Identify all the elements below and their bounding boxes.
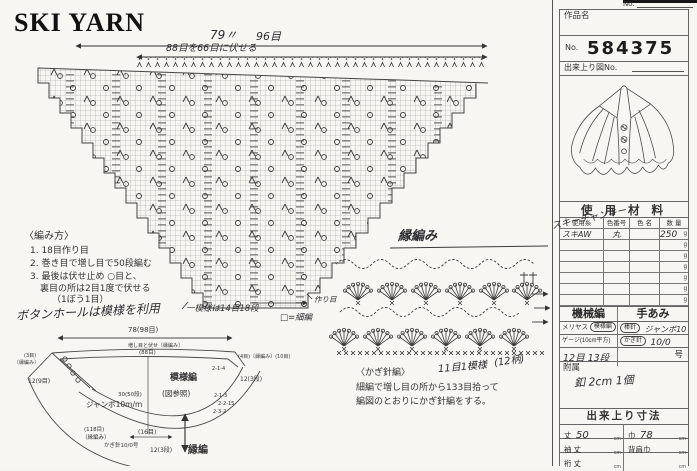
schematic-left-dim: 12(9目) (28, 379, 50, 386)
stitch-type-row: メリヤス 模様編 棒針 ジャンボ10 (559, 322, 689, 335)
knit-chart (38, 46, 488, 309)
qty-unit: g (684, 284, 688, 295)
material-row-color-no: 丸 (604, 229, 630, 240)
schematic-center-sts: (16目) (138, 430, 156, 437)
gauge-label: ゲージ(10cm平方) (560, 335, 618, 349)
schematic-dec: 2-3-2 (213, 410, 226, 416)
crochet-note-line: 細編で増し目の所から133目拾って (356, 383, 499, 393)
chart-legend: □=細編 (280, 314, 312, 324)
schematic-body-ref: (図参照) (162, 390, 190, 398)
instructions-heading: 〈編み方〉 (24, 231, 74, 242)
chart-repeat-note: 一模様は14目18段 (186, 305, 259, 315)
crochet-chart (330, 246, 551, 358)
form-figure-box: 出来上り図No. (559, 62, 689, 76)
qty-unit: g (684, 295, 688, 306)
form-top-no-label: No. (623, 1, 635, 9)
schematic-right-note: (4目)〔縁編み〕(10目) (238, 355, 290, 361)
instruction-step: 1. 18目作り目 (30, 246, 89, 256)
size-header-box: 出来上り寸法 (559, 409, 689, 425)
size-label-yuki: 裄 丈 (560, 459, 581, 468)
qty-unit: g (684, 273, 688, 284)
method-header-row: 機械編 手あみ (559, 307, 689, 322)
qty-unit: g (684, 262, 688, 273)
accessories-value: 釦 2cm 1個 (574, 374, 634, 389)
instruction-step: 2. 巻き目で増し目で50段編む (30, 259, 152, 269)
instruction-step: 3. 最後は伏せ止め ○目と、 (30, 272, 142, 282)
accessories-box: 附属 釦 2cm 1個 (559, 362, 689, 409)
hand-knit-header: 手あみ (618, 307, 688, 321)
accessories-label: 附属 (563, 364, 580, 374)
size-unit: cm (679, 464, 686, 470)
pattern-form: No. 作品名 No. 584375 出来上り図No. (552, 0, 697, 466)
gauge-value-row: 12目 13段 号 (559, 348, 689, 362)
crochet-note-line: 編図のとおりにかぎ針編をする。 (356, 397, 491, 407)
crochet-title: 縁編み (398, 230, 437, 245)
form-number-box: No. 584375 (559, 36, 689, 62)
hook-type-label: かぎ針 (620, 336, 646, 346)
schematic-band-label: 縁編 (188, 445, 208, 456)
chart-stitch-count: 96目 (256, 31, 281, 43)
schematic-top-dim: 78(98目) (128, 327, 158, 335)
machine-knit-header: 機械編 (560, 307, 618, 321)
size-row-3: 裄 丈 cm cm (559, 453, 689, 466)
pattern-number: 584375 (587, 39, 674, 59)
crochet-heading: 〈かぎ針編〉 (356, 368, 410, 378)
form-no-label: No. (565, 44, 578, 53)
col-header-color-name: 色 名 (630, 218, 660, 229)
form-figure-line (632, 71, 684, 72)
schematic-right-dim: 12(3段) (240, 377, 262, 384)
materials-table: 使用糸 色番号 色 名 数 量 スキAW 丸 250g g g g g g g (559, 218, 689, 307)
schematic-band-dim: 12(3段) (150, 448, 172, 455)
form-title-box: 作品名 (559, 9, 689, 36)
form-sketch-box (559, 76, 689, 202)
stitch-type-selected: 模様編 (590, 322, 616, 332)
collar-sketch (560, 76, 688, 200)
material-row-qty: 250 (660, 230, 677, 240)
schematic-dec: 2-1-3 (214, 394, 227, 400)
schematic-height-dim: 30(50段) (118, 392, 142, 398)
chart-bindoff-note: 88目を66目に伏せる (166, 44, 257, 55)
form-top-no-line (637, 7, 693, 8)
qty-unit: g (684, 240, 688, 251)
scanned-pattern-page: SKI YARN 79〃 96目 88目を66目に伏せる 一模様は14目18段 … (0, 0, 697, 466)
schematic-left-edge: 〔縁編み〕 (14, 361, 39, 367)
schematic-dec: 2-2-15 (218, 402, 234, 408)
size-header: 出来上り寸法 (560, 411, 688, 423)
material-row-yarn: スキAW (560, 229, 604, 240)
schematic-bottom-edge: 〔縁編み〕 (82, 435, 110, 441)
size-row-2: 袖 丈 cm 背肩巾 cm (559, 439, 689, 453)
brand-logo: SKI YARN (14, 8, 145, 38)
schematic-left-sts: (3目) (24, 354, 36, 360)
schematic-bottom-sts: (118目) (84, 427, 104, 433)
chart-width-dim: 79〃 (210, 29, 237, 42)
qty-unit: g (684, 251, 688, 262)
schematic-needle: ジャンボ10m/m (86, 401, 142, 409)
schematic-dec: 2-1-4 (212, 367, 225, 373)
gauge-label-row: ゲージ(10cm平方) かぎ針 10/0 (559, 335, 689, 348)
size-unit: cm (614, 464, 621, 470)
stitch-type-label: メリヤス (562, 324, 588, 331)
qty-unit: g (684, 229, 688, 240)
schematic-inner-dim: (88目) (139, 350, 156, 356)
needle-size-value: ジャンボ10 (644, 325, 686, 334)
form-figure-label: 出来上り図No. (564, 64, 617, 73)
chart-caston-note: 作り目 (314, 296, 337, 304)
col-header-qty: 数 量 (660, 218, 688, 229)
instruction-step: 裏目の所は2目1度で伏せる (40, 284, 150, 294)
schematic-body-label: 模様編 (170, 373, 197, 383)
form-title-label: 作品名 (564, 12, 590, 22)
needle-type-label: 棒針 (620, 323, 640, 333)
size-row-1: 丈 50 cm 巾 78 cm (559, 425, 689, 439)
schematic-hook: かぎ針10/0号 (104, 443, 138, 449)
schematic-top-note: 増し目と伏せ〔縁編み〕 (128, 344, 183, 350)
hook-size-value: 10/0 (650, 338, 670, 348)
